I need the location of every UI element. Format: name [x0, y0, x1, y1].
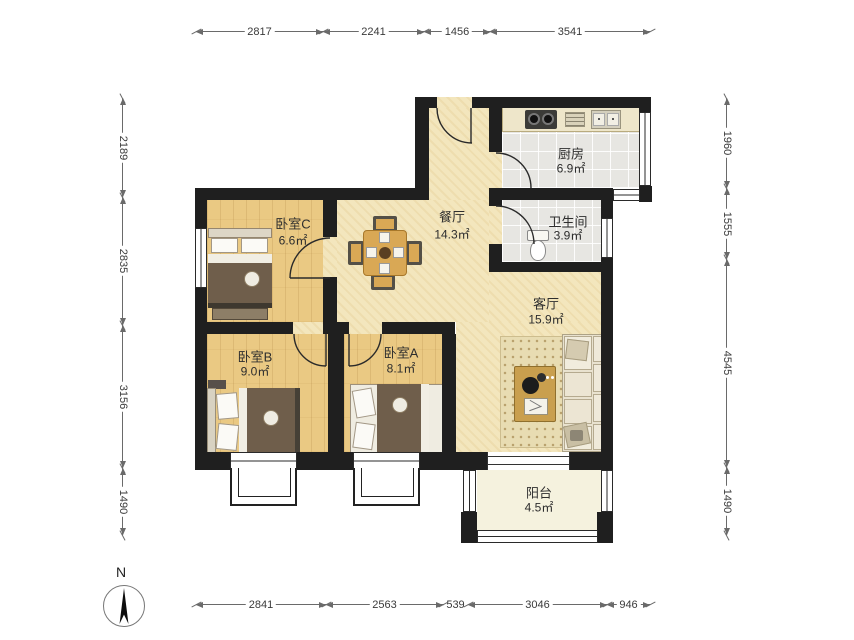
floorplan-canvas: 卧室C6.6㎡餐厅14.3㎡厨房6.9㎡卫生间3.9㎡客厅15.9㎡卧室B9.0… [0, 0, 854, 640]
dimension-lines: 2817224114563541284125635393046946218928… [0, 0, 854, 640]
dim-label: 1960 [721, 128, 733, 158]
compass: N [100, 564, 150, 634]
dim-segment: 1555 [726, 188, 727, 259]
dim-label: 1490 [721, 486, 733, 516]
dim-segment: 1490 [726, 467, 727, 535]
dim-segment: 1960 [726, 98, 727, 188]
dim-label: 1555 [721, 208, 733, 238]
dimension-right: 1960155545451490 [0, 0, 854, 640]
dim-label: 4545 [721, 348, 733, 378]
compass-north-label: N [116, 564, 126, 580]
dim-segment: 4545 [726, 259, 727, 467]
